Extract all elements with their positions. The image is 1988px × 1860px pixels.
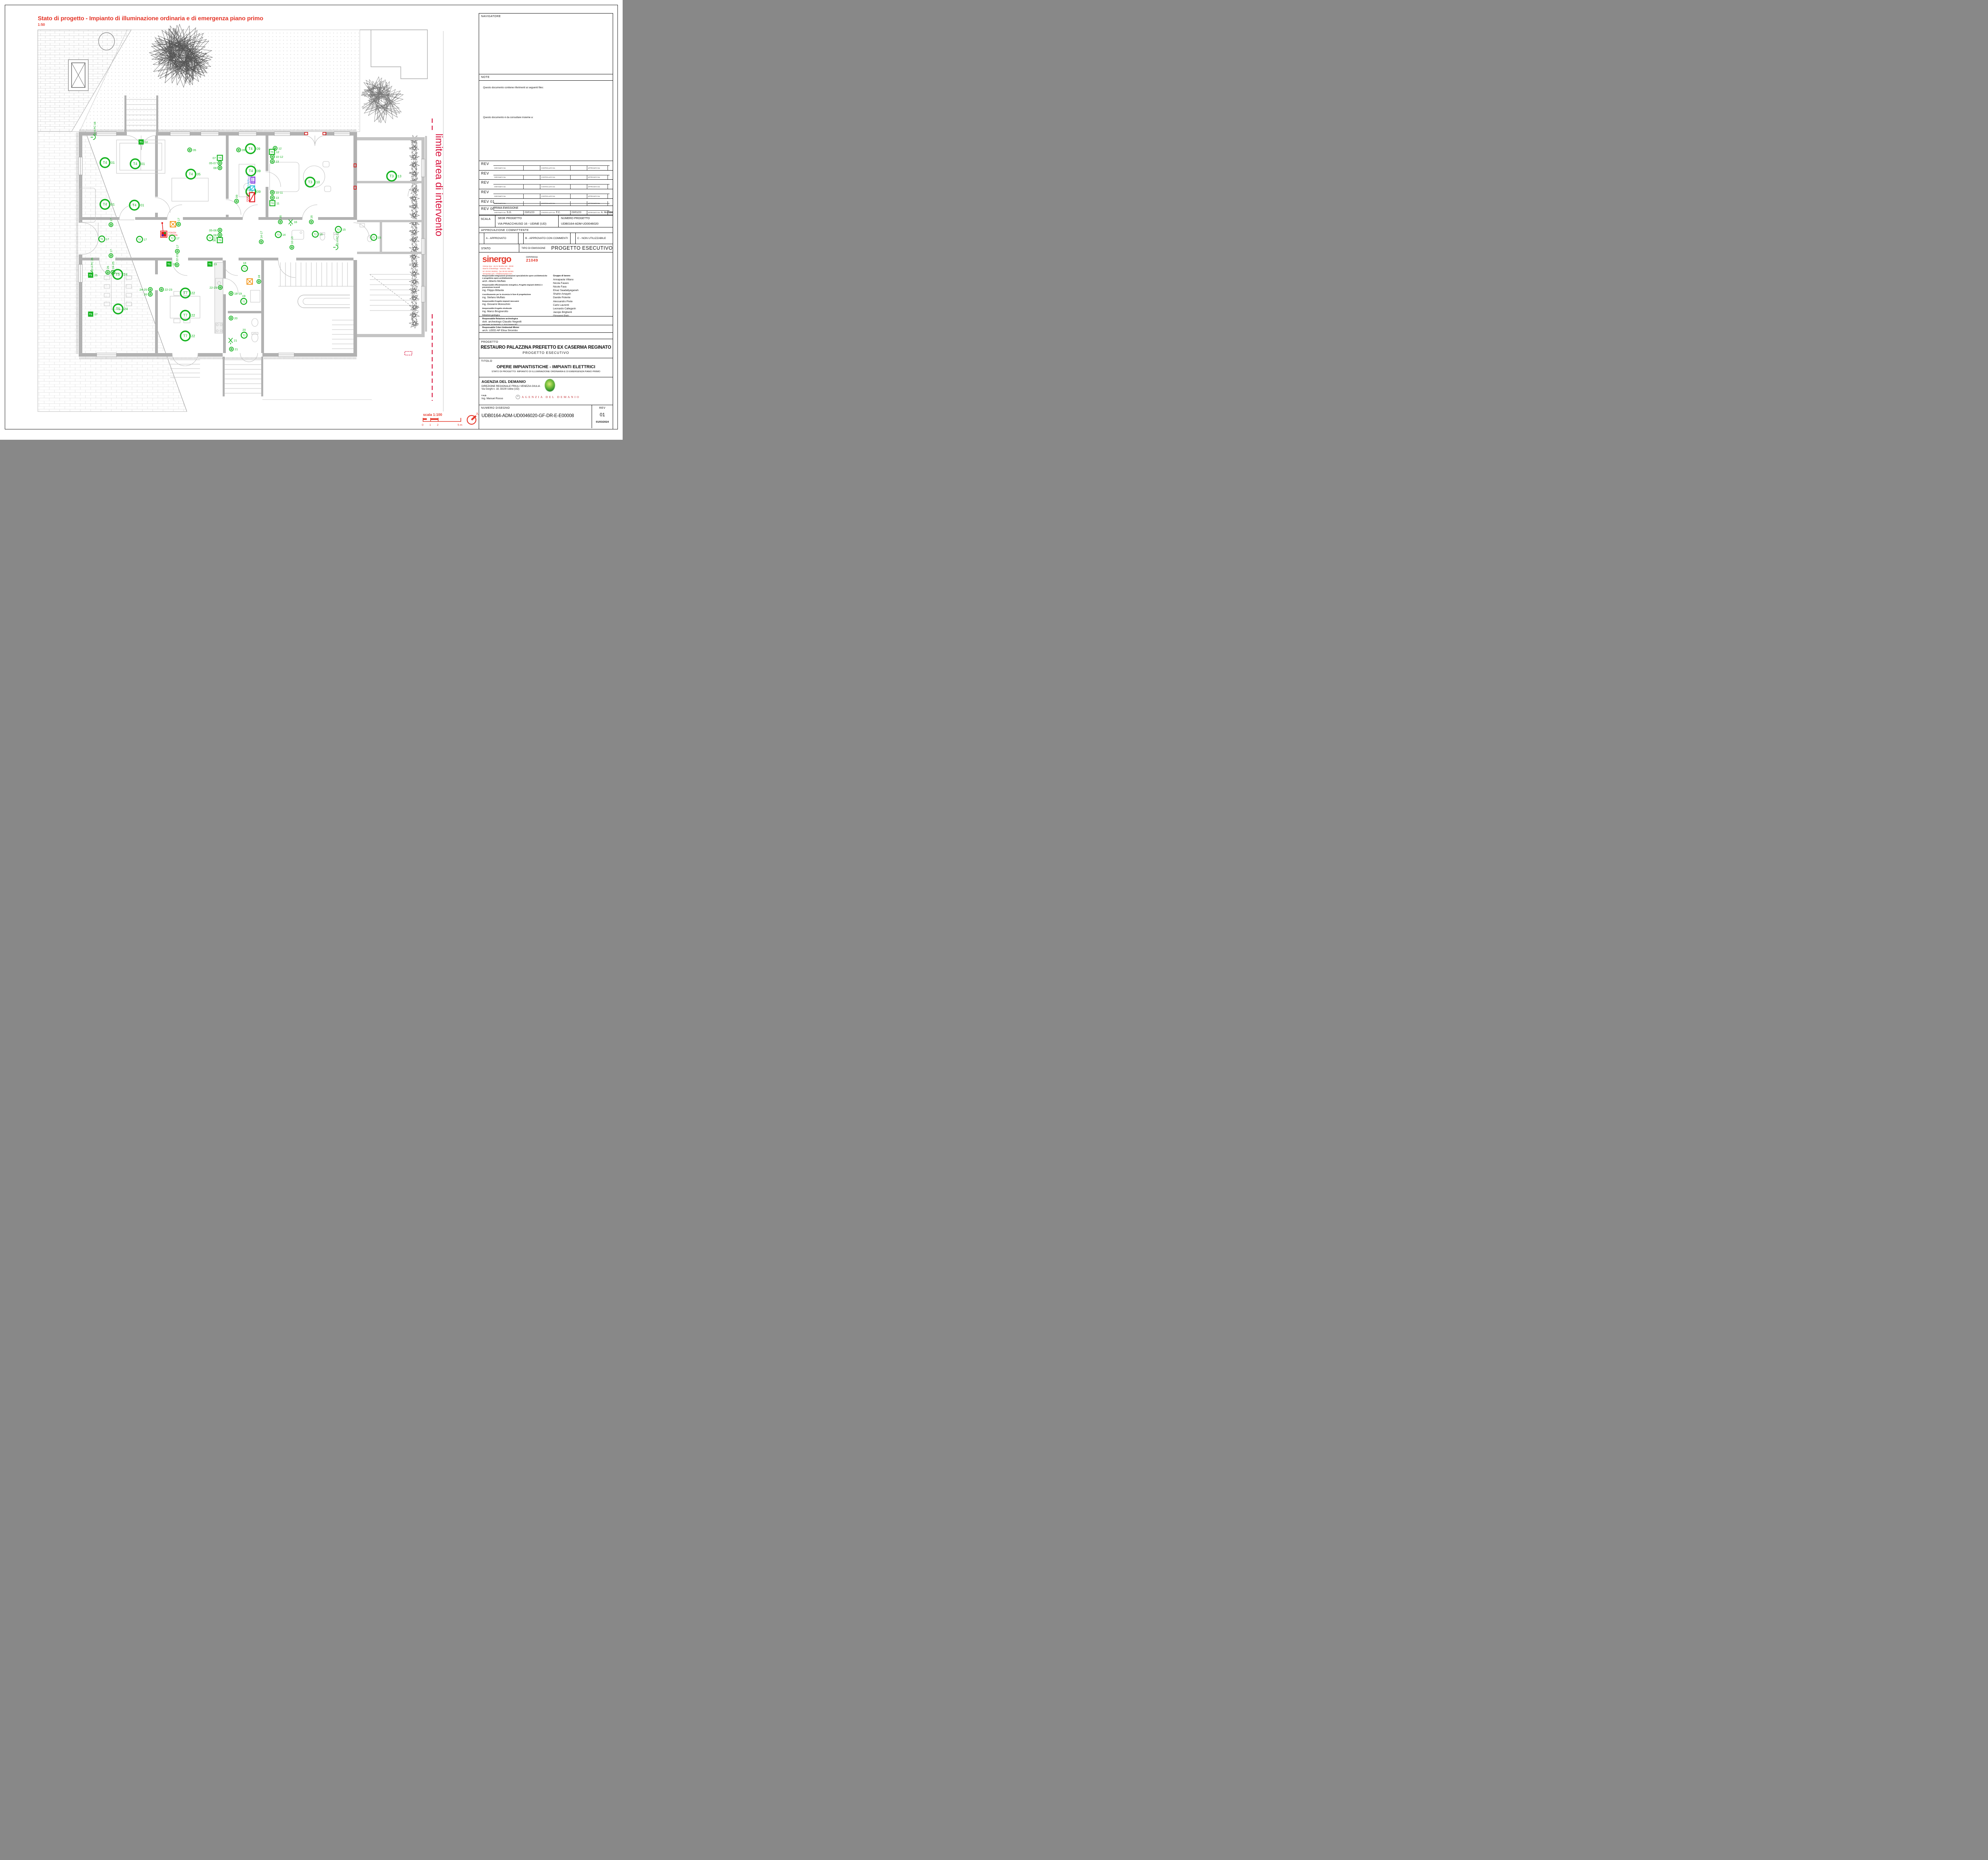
page-border [5, 5, 618, 429]
drawing-sheet: limite area di intervento scala 1:100 0 … [0, 0, 623, 440]
